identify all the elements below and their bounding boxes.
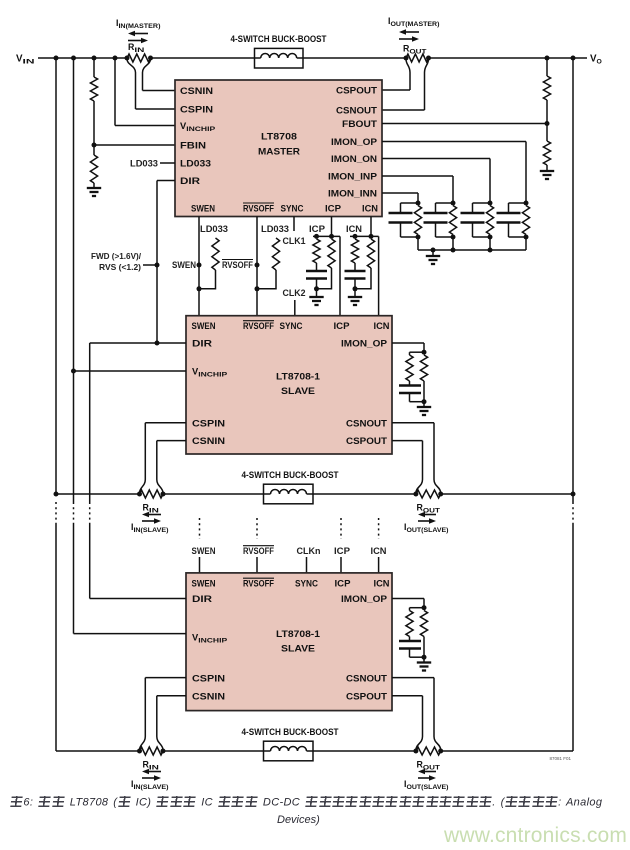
svg-text:4-SWITCH BUCK-BOOST: 4-SWITCH BUCK-BOOST <box>242 727 339 737</box>
svg-text:SYNC: SYNC <box>281 204 304 214</box>
svg-text:SYNC: SYNC <box>280 321 303 331</box>
svg-text:CSPOUT: CSPOUT <box>346 692 387 702</box>
svg-text:SYNC: SYNC <box>295 579 318 589</box>
svg-text:CSNOUT: CSNOUT <box>336 106 377 116</box>
svg-text:IMON_INP: IMON_INP <box>328 172 377 182</box>
svg-text:ICP: ICP <box>334 546 350 556</box>
svg-text:CSPIN: CSPIN <box>192 419 225 429</box>
svg-text:CLKn: CLKn <box>297 546 321 556</box>
svg-text:4-SWITCH BUCK-BOOST: 4-SWITCH BUCK-BOOST <box>231 34 327 44</box>
svg-text:IMON_OP: IMON_OP <box>331 137 377 147</box>
svg-text:CSNIN: CSNIN <box>180 86 213 96</box>
svg-text:RVSOFF: RVSOFF <box>243 321 274 331</box>
svg-text:ROUT: ROUT <box>417 760 441 772</box>
svg-text:ICN: ICN <box>374 321 390 331</box>
svg-text:FBOUT: FBOUT <box>342 119 377 129</box>
svg-text:LT8708: LT8708 <box>261 132 297 142</box>
svg-text:SWEN: SWEN <box>192 546 216 556</box>
svg-text:DIR: DIR <box>192 594 212 604</box>
svg-text:CSPIN: CSPIN <box>192 674 225 684</box>
svg-text:LD033: LD033 <box>180 159 211 169</box>
svg-text:DIR: DIR <box>180 176 200 186</box>
svg-text:RIN: RIN <box>128 42 145 54</box>
svg-text:CSNIN: CSNIN <box>192 436 225 446</box>
svg-text:IOUT(MASTER): IOUT(MASTER) <box>388 16 439 28</box>
svg-text:DIR: DIR <box>192 339 212 349</box>
svg-text:LD033: LD033 <box>130 159 158 169</box>
svg-text:CLK1: CLK1 <box>283 236 306 246</box>
svg-text:CSNIN: CSNIN <box>192 692 225 702</box>
svg-text:IMON_OP: IMON_OP <box>341 339 387 349</box>
svg-text:IOUT(SLAVE): IOUT(SLAVE) <box>404 522 448 534</box>
svg-text:RIN: RIN <box>143 760 160 772</box>
svg-text:MASTER: MASTER <box>258 147 300 157</box>
svg-text:SWEN: SWEN <box>172 260 196 270</box>
svg-text:CSPOUT: CSPOUT <box>346 436 387 446</box>
svg-text:VIN: VIN <box>16 54 35 66</box>
svg-text:ICN: ICN <box>374 579 390 589</box>
svg-text:CSNOUT: CSNOUT <box>346 674 387 684</box>
svg-text:RVSOFF: RVSOFF <box>243 204 274 214</box>
svg-text:LT8708-1: LT8708-1 <box>276 372 320 382</box>
svg-text:CSNOUT: CSNOUT <box>346 419 387 429</box>
svg-text:ICP: ICP <box>335 579 351 589</box>
svg-text:CSPOUT: CSPOUT <box>336 86 377 96</box>
svg-text:LT8708-1: LT8708-1 <box>276 629 320 639</box>
svg-text:ICP: ICP <box>309 224 325 234</box>
svg-text:RVSOFF: RVSOFF <box>222 260 253 270</box>
svg-text:IMON_OP: IMON_OP <box>341 594 387 604</box>
svg-text:SWEN: SWEN <box>192 321 216 331</box>
svg-text:ICP: ICP <box>334 321 350 331</box>
svg-text:VO: VO <box>590 54 602 66</box>
svg-text:RVS (<1.2): RVS (<1.2) <box>99 263 141 272</box>
svg-text:ICP: ICP <box>325 204 341 214</box>
svg-text:RVSOFF: RVSOFF <box>243 579 274 589</box>
svg-text:IIN(SLAVE): IIN(SLAVE) <box>131 779 168 791</box>
svg-text:FWD (>1.6V)/: FWD (>1.6V)/ <box>91 252 142 261</box>
svg-text:IOUT(SLAVE): IOUT(SLAVE) <box>404 779 448 791</box>
svg-text:SLAVE: SLAVE <box>281 386 315 396</box>
svg-text:87081 F01: 87081 F01 <box>549 756 571 761</box>
svg-text:ICN: ICN <box>362 204 378 214</box>
svg-text:IMON_ON: IMON_ON <box>331 154 377 164</box>
svg-text:ROUT: ROUT <box>417 503 441 515</box>
svg-text:FBIN: FBIN <box>180 141 206 151</box>
svg-text:ICN: ICN <box>371 546 387 556</box>
svg-text:LD033: LD033 <box>261 224 289 234</box>
svg-text:IIN(MASTER): IIN(MASTER) <box>116 18 160 30</box>
svg-text:SWEN: SWEN <box>191 204 215 214</box>
svg-text:CSPIN: CSPIN <box>180 105 213 115</box>
svg-text:IMON_INN: IMON_INN <box>328 189 377 199</box>
svg-text:RIN: RIN <box>143 503 160 515</box>
svg-text:RVSOFF: RVSOFF <box>243 546 274 556</box>
svg-text:SLAVE: SLAVE <box>281 644 315 654</box>
svg-text:CLK2: CLK2 <box>283 288 306 298</box>
svg-text:ICN: ICN <box>346 224 362 234</box>
svg-text:4-SWITCH BUCK-BOOST: 4-SWITCH BUCK-BOOST <box>242 470 339 480</box>
svg-text:SWEN: SWEN <box>192 579 216 589</box>
svg-text:IIN(SLAVE): IIN(SLAVE) <box>131 522 168 534</box>
svg-text:LD033: LD033 <box>200 224 228 234</box>
